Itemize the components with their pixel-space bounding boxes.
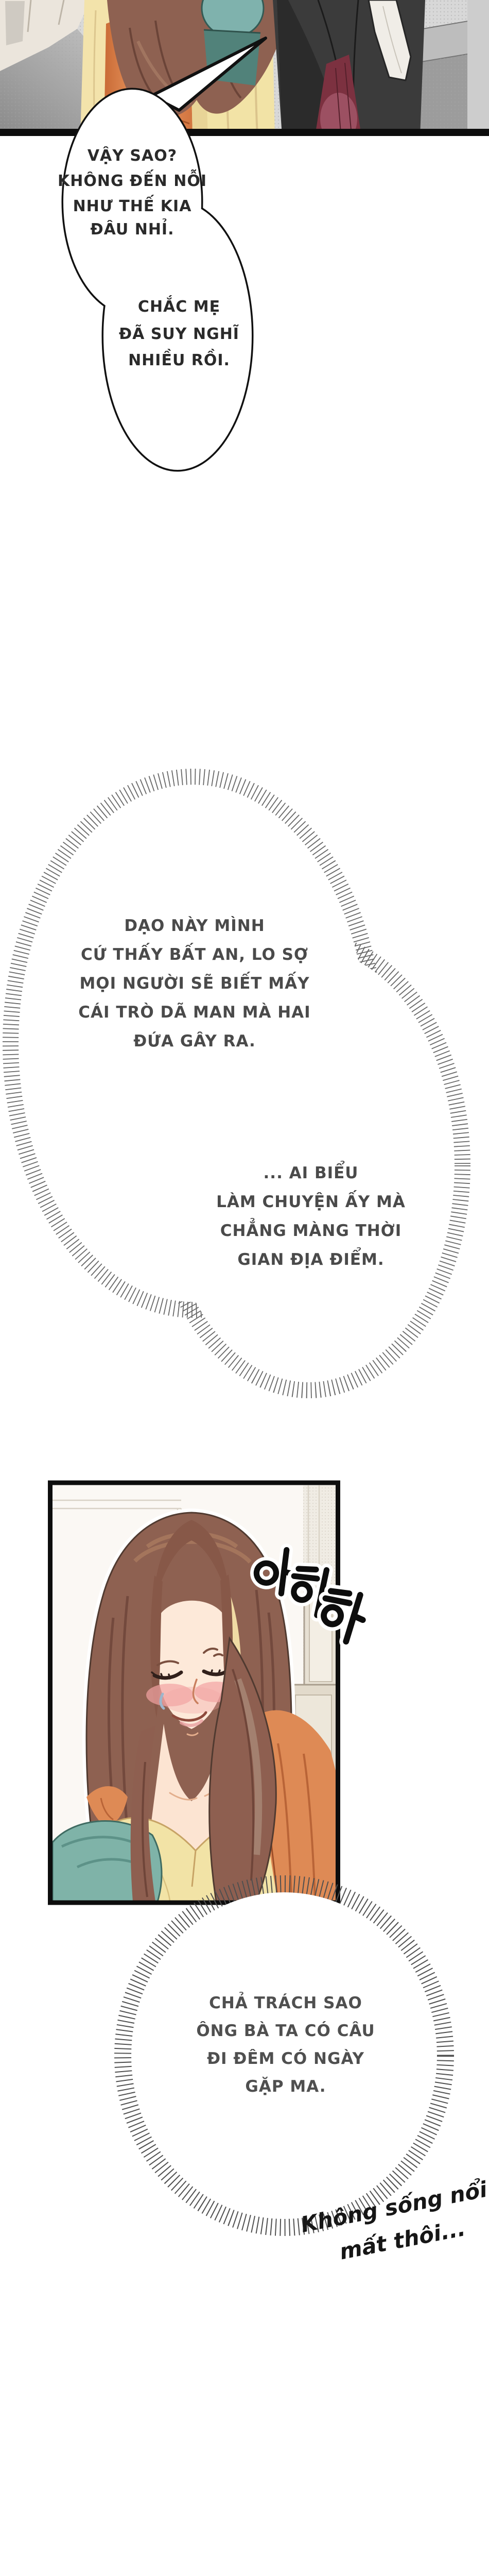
thought-line: DẠO NÀY MÌNH — [124, 917, 265, 935]
top-panel-bottom-border — [0, 129, 489, 136]
speech-line: ĐÂU NHỈ. — [90, 218, 174, 239]
speech-line: VẬY SAO? — [88, 146, 177, 165]
thought-line: CHẲNG MÀNG THỜI — [220, 1218, 402, 1240]
thought-line: CÁI TRÒ DÃ MAN MÀ HAI — [78, 1003, 310, 1022]
speech-line: KHÔNG ĐẾN NỖI — [58, 169, 207, 190]
thought-line: ÔNG BÀ TA CÓ CÂU — [196, 2021, 375, 2040]
thought-line: CHẢ TRÁCH SAO — [209, 1992, 362, 2012]
right-wall-column — [467, 0, 489, 136]
thought-line: ... AI BIỂU — [264, 1161, 359, 1182]
webtoon-page: VẬY SAO? KHÔNG ĐẾN NỖI NHƯ THẾ KIA ĐÂU N… — [0, 0, 489, 2576]
thought-line: ĐI ĐÊM CÓ NGÀY — [207, 2049, 364, 2068]
thought-line: MỌI NGƯỜI SẼ BIẾT MẤY — [79, 972, 309, 993]
speech-line: NHƯ THẾ KIA — [73, 195, 192, 215]
thought-line: GẶP MA. — [245, 2077, 326, 2096]
thought-line: LÀM CHUYỆN ẤY MÀ — [216, 1191, 406, 1211]
speech-line: ĐÃ SUY NGHĨ — [119, 324, 239, 343]
thought-line: GIAN ĐỊA ĐIỂM. — [237, 1248, 384, 1269]
top-panel — [0, 0, 489, 144]
thought-line: CỨ THẤY BẤT AN, LO SỢ — [81, 943, 308, 964]
main-panel — [50, 1483, 370, 1903]
comic-page-canvas: VẬY SAO? KHÔNG ĐẾN NỖI NHƯ THẾ KIA ĐÂU N… — [0, 0, 489, 2576]
speech-line: NHIỀU RỒI. — [128, 348, 230, 369]
speech-line: CHẮC MẸ — [138, 295, 220, 316]
thought-bubble-3: CHẢ TRÁCH SAO ÔNG BÀ TA CÓ CÂU ĐI ĐÊM CÓ… — [130, 1891, 439, 2221]
thought-line: ĐỨA GÂY RA. — [133, 1031, 256, 1050]
door-inset — [5, 1, 25, 45]
thought-bubbles: DẠO NÀY MÌNH CỨ THẤY BẤT AN, LO SỢ MỌI N… — [17, 783, 456, 1384]
